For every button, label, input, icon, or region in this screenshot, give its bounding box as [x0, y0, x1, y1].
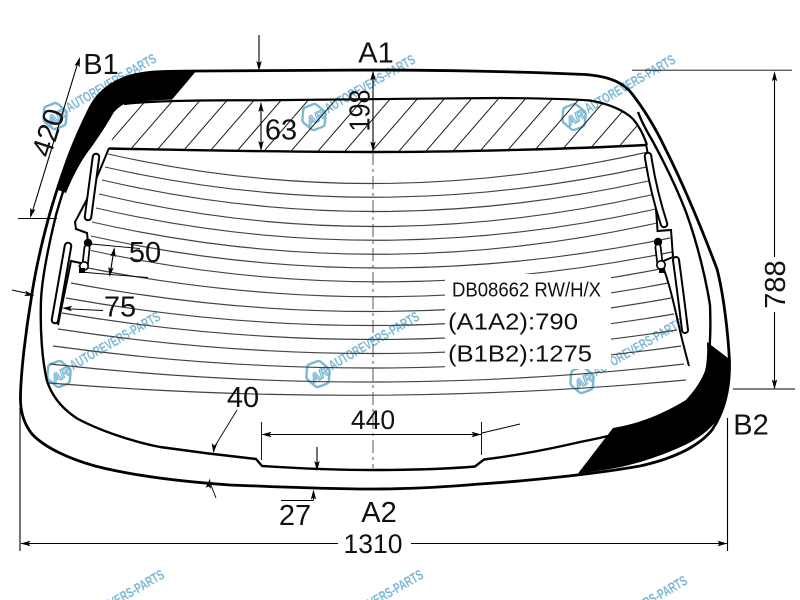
svg-text:440: 440	[351, 405, 395, 435]
svg-text:B2: B2	[733, 410, 768, 442]
svg-text:DB08662 RW/H/X: DB08662 RW/H/X	[452, 280, 601, 302]
svg-text:50: 50	[129, 237, 161, 269]
svg-text:63: 63	[265, 115, 297, 147]
svg-text:1310: 1310	[344, 529, 403, 559]
svg-text:40: 40	[227, 382, 259, 414]
svg-text:27: 27	[279, 500, 311, 532]
svg-text:198: 198	[345, 90, 377, 132]
svg-text:A2: A2	[361, 497, 396, 529]
svg-text:75: 75	[104, 292, 136, 324]
svg-text:(A1A2):790: (A1A2):790	[448, 309, 578, 335]
svg-text:788: 788	[760, 260, 792, 308]
svg-text:(B1B2):1275: (B1B2):1275	[448, 341, 592, 367]
svg-text:B1: B1	[83, 49, 118, 81]
svg-text:A1: A1	[358, 38, 393, 70]
